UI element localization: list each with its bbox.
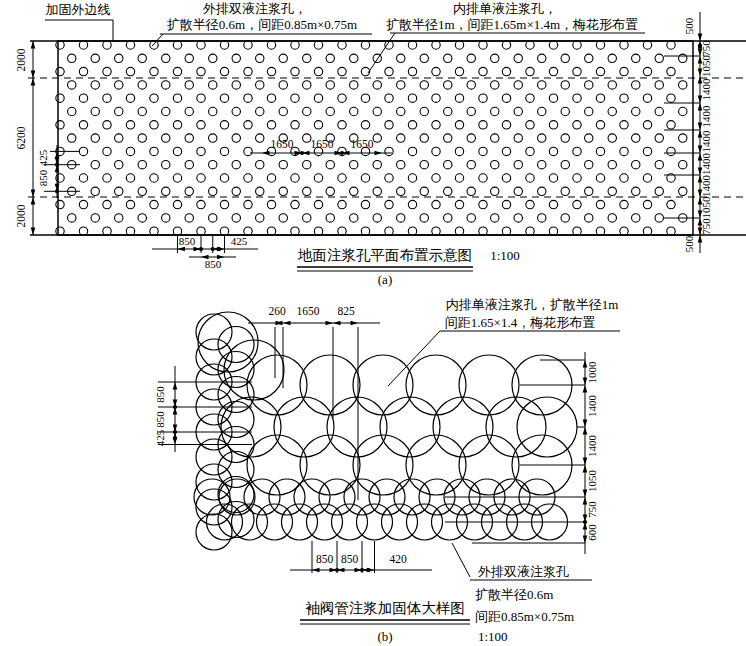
dim-label-right-b: 750 bbox=[586, 501, 598, 518]
grout-hole-circle bbox=[643, 227, 651, 235]
grout-hole-circle bbox=[643, 174, 651, 182]
dim-label-right: 1400 bbox=[700, 130, 712, 153]
grout-hole-circle bbox=[502, 227, 510, 235]
grout-hole-circle bbox=[256, 214, 264, 222]
dim-dot bbox=[360, 568, 364, 572]
grout-hole-circle bbox=[279, 214, 287, 222]
grout-hole-circle bbox=[79, 147, 87, 155]
grout-hole-circle bbox=[350, 107, 358, 115]
grout-hole-circle bbox=[432, 227, 440, 235]
grout-hole-circle bbox=[408, 94, 416, 102]
grout-hole-circle bbox=[56, 121, 64, 129]
grout-hole-circle bbox=[56, 67, 64, 75]
grout-hole-circle bbox=[479, 174, 487, 182]
grout-hole-circle bbox=[232, 107, 240, 115]
grout-hole-circle bbox=[338, 94, 346, 102]
grout-hole-circle bbox=[397, 107, 405, 115]
leader-line bbox=[368, 33, 395, 73]
dim-label-left: 2000 bbox=[15, 204, 27, 227]
grout-hole-circle bbox=[209, 54, 217, 62]
dim-arrow bbox=[217, 247, 225, 252]
dim-label-bottom-b: 850 bbox=[341, 553, 359, 565]
grout-hole-circle bbox=[173, 41, 181, 49]
dim-label-top-b: 825 bbox=[337, 305, 355, 317]
grout-hole-circle bbox=[197, 147, 205, 155]
dim-arrow bbox=[583, 427, 588, 435]
dim-arrow bbox=[31, 41, 36, 49]
grout-hole-circle bbox=[373, 187, 381, 195]
figure-b-title: 袖阀管注浆加固体大样图 bbox=[305, 600, 465, 616]
grout-hole-circle bbox=[291, 174, 299, 182]
grout-hole-circle bbox=[585, 54, 593, 62]
grout-hole-circle bbox=[338, 174, 346, 182]
grout-hole-circle bbox=[244, 147, 252, 155]
grout-hole-circle bbox=[479, 67, 487, 75]
grout-hole-circle bbox=[408, 200, 416, 208]
grout-hole-circle bbox=[408, 227, 416, 235]
outer-holes-label-b: 外排双液注浆孔 bbox=[477, 564, 569, 579]
grout-hole-circle bbox=[185, 187, 193, 195]
figure-a-scale: 1:100 bbox=[490, 248, 520, 263]
grout-hole-circle bbox=[467, 81, 475, 89]
grout-hole-circle bbox=[561, 161, 569, 169]
grout-hole-circle bbox=[643, 147, 651, 155]
grout-hole-circle bbox=[103, 67, 111, 75]
grout-hole-circle bbox=[244, 174, 252, 182]
grout-hole-circle bbox=[420, 161, 428, 169]
grout-hole-circle bbox=[185, 134, 193, 142]
grout-hole-circle bbox=[279, 161, 287, 169]
grout-hole-circle bbox=[491, 134, 499, 142]
grout-hole-circle bbox=[655, 54, 663, 62]
dim-label-right: 1400 bbox=[700, 153, 712, 176]
grout-hole-circle bbox=[514, 214, 522, 222]
inner-grout-circle bbox=[380, 397, 440, 457]
inner-grout-circle bbox=[406, 435, 466, 495]
grout-hole-circle bbox=[455, 67, 463, 75]
grout-hole-circle bbox=[103, 147, 111, 155]
grout-hole-circle bbox=[291, 227, 299, 235]
grout-hole-circle bbox=[220, 147, 228, 155]
grout-hole-circle bbox=[632, 187, 640, 195]
grout-hole-circle bbox=[56, 227, 64, 235]
grout-hole-circle bbox=[585, 134, 593, 142]
grout-hole-circle bbox=[643, 121, 651, 129]
dim-arrow bbox=[375, 151, 383, 156]
grout-hole-circle bbox=[326, 161, 334, 169]
grout-hole-circle bbox=[91, 107, 99, 115]
grout-hole-circle bbox=[408, 147, 416, 155]
outer-holes-label-b: 扩散半径0.6m bbox=[475, 587, 553, 602]
inner-grout-circle bbox=[517, 397, 577, 457]
dim-arrow bbox=[698, 235, 703, 243]
grout-hole-circle bbox=[491, 187, 499, 195]
grout-hole-circle bbox=[115, 134, 123, 142]
grout-hole-circle bbox=[408, 67, 416, 75]
dim-arrow bbox=[262, 151, 270, 156]
grout-hole-circle bbox=[115, 54, 123, 62]
grout-hole-circle bbox=[526, 67, 534, 75]
grout-hole-circle bbox=[444, 107, 452, 115]
grout-hole-circle bbox=[385, 147, 393, 155]
grout-hole-circle bbox=[256, 134, 264, 142]
grout-hole-circle bbox=[220, 174, 228, 182]
grout-hole-circle bbox=[232, 81, 240, 89]
dim-arrow bbox=[31, 197, 36, 205]
grout-hole-circle bbox=[502, 41, 510, 49]
dim-label-right: 750 bbox=[700, 40, 712, 57]
grout-hole-circle bbox=[209, 81, 217, 89]
grout-hole-circle bbox=[314, 121, 322, 129]
dim-arrow bbox=[583, 458, 588, 466]
grout-hole-circle bbox=[185, 161, 193, 169]
grout-hole-circle bbox=[314, 174, 322, 182]
grout-hole-circle bbox=[538, 107, 546, 115]
grout-hole-circle bbox=[256, 54, 264, 62]
grout-hole-circle bbox=[667, 147, 675, 155]
inner-grout-circle bbox=[459, 355, 519, 415]
grout-hole-circle bbox=[491, 107, 499, 115]
grout-hole-circle bbox=[608, 54, 616, 62]
grout-hole-circle bbox=[267, 67, 275, 75]
grout-hole-circle bbox=[467, 161, 475, 169]
grout-hole-circle bbox=[479, 94, 487, 102]
grout-hole-circle bbox=[526, 94, 534, 102]
grout-hole-circle bbox=[538, 81, 546, 89]
grout-hole-circle bbox=[103, 200, 111, 208]
grout-hole-circle bbox=[162, 54, 170, 62]
dim-label-right: 500 bbox=[683, 17, 695, 34]
grout-hole-circle bbox=[126, 94, 134, 102]
dim-dot bbox=[340, 151, 344, 155]
grout-hole-circle bbox=[244, 200, 252, 208]
dim-arrow bbox=[312, 568, 320, 573]
grout-hole-circle bbox=[432, 67, 440, 75]
inner-grout-circle bbox=[459, 435, 519, 495]
grout-hole-circle bbox=[608, 134, 616, 142]
grout-hole-circle bbox=[455, 200, 463, 208]
leader-line bbox=[452, 543, 470, 577]
grout-hole-circle bbox=[573, 121, 581, 129]
outer-grout-circle bbox=[218, 502, 254, 538]
dim-label-right-b: 1050 bbox=[586, 470, 598, 493]
grout-hole-circle bbox=[150, 147, 158, 155]
grout-hole-circle bbox=[267, 174, 275, 182]
outer-grout-circle bbox=[196, 514, 232, 550]
grout-hole-circle bbox=[397, 161, 405, 169]
outer-holes-label-b: 间距0.85m×0.75m bbox=[475, 609, 574, 624]
grout-hole-circle bbox=[197, 227, 205, 235]
grout-hole-circle bbox=[126, 121, 134, 129]
dim-dot bbox=[211, 247, 215, 251]
grout-hole-circle bbox=[232, 187, 240, 195]
dim-arrow bbox=[173, 382, 178, 390]
grout-hole-circle bbox=[197, 174, 205, 182]
grout-hole-circle bbox=[655, 107, 663, 115]
grout-hole-circle bbox=[420, 81, 428, 89]
dim-dot bbox=[55, 189, 59, 193]
dim-dot bbox=[173, 405, 177, 409]
grout-hole-circle bbox=[126, 200, 134, 208]
grout-hole-circle bbox=[338, 41, 346, 49]
inner-holes-label: 内排单液注浆孔， bbox=[453, 1, 557, 16]
grout-hole-circle bbox=[197, 67, 205, 75]
grout-hole-circle bbox=[68, 54, 76, 62]
grout-hole-circle bbox=[373, 134, 381, 142]
grout-hole-circle bbox=[279, 81, 287, 89]
grout-hole-circle bbox=[455, 174, 463, 182]
dim-label-middle: 1650 bbox=[351, 138, 374, 150]
grout-hole-circle bbox=[256, 81, 264, 89]
dim-dot bbox=[55, 163, 59, 167]
grout-hole-circle bbox=[455, 41, 463, 49]
dim-arrow bbox=[31, 228, 36, 236]
grout-hole-circle bbox=[620, 147, 628, 155]
grout-hole-circle bbox=[620, 41, 628, 49]
grout-hole-circle bbox=[620, 174, 628, 182]
grout-hole-circle bbox=[573, 41, 581, 49]
grout-hole-circle bbox=[514, 187, 522, 195]
grout-hole-circle bbox=[244, 121, 252, 129]
inner-grout-circle bbox=[486, 397, 546, 457]
grout-hole-circle bbox=[573, 147, 581, 155]
grout-hole-circle bbox=[385, 94, 393, 102]
grout-hole-circle bbox=[573, 227, 581, 235]
grout-hole-circle bbox=[256, 187, 264, 195]
grout-hole-circle bbox=[291, 41, 299, 49]
grout-hole-circle bbox=[326, 107, 334, 115]
grout-hole-circle bbox=[68, 134, 76, 142]
inner-grout-circle bbox=[300, 355, 360, 415]
grout-hole-circle bbox=[91, 214, 99, 222]
grout-hole-circle bbox=[538, 54, 546, 62]
grout-hole-circle bbox=[502, 200, 510, 208]
grout-hole-circle bbox=[162, 134, 170, 142]
grout-hole-circle bbox=[432, 174, 440, 182]
grout-hole-circle bbox=[420, 214, 428, 222]
grout-hole-circle bbox=[173, 174, 181, 182]
inner-holes-label-b: 间距1.65×1.4，梅花形布置 bbox=[445, 315, 595, 330]
grout-hole-circle bbox=[444, 161, 452, 169]
leader-line bbox=[152, 34, 163, 46]
grout-hole-circle bbox=[420, 107, 428, 115]
dim-arrow bbox=[351, 321, 359, 326]
grout-hole-circle bbox=[632, 214, 640, 222]
grout-hole-circle bbox=[267, 41, 275, 49]
dim-label-top-b: 260 bbox=[268, 305, 286, 317]
grout-hole-circle bbox=[432, 41, 440, 49]
grout-hole-circle bbox=[279, 187, 287, 195]
grout-hole-circle bbox=[138, 214, 146, 222]
grout-hole-circle bbox=[197, 121, 205, 129]
grout-hole-circle bbox=[655, 214, 663, 222]
grout-hole-circle bbox=[655, 187, 663, 195]
grout-hole-circle bbox=[68, 81, 76, 89]
grout-hole-circle bbox=[303, 214, 311, 222]
grout-hole-circle bbox=[596, 41, 604, 49]
grout-hole-circle bbox=[350, 187, 358, 195]
grout-hole-circle bbox=[220, 227, 228, 235]
grout-hole-circle bbox=[267, 94, 275, 102]
grout-hole-circle bbox=[150, 227, 158, 235]
dim-arrow bbox=[367, 568, 375, 573]
grout-hole-circle bbox=[549, 41, 557, 49]
grout-hole-circle bbox=[620, 227, 628, 235]
grout-hole-circle bbox=[314, 67, 322, 75]
grout-hole-circle bbox=[232, 54, 240, 62]
grout-hole-circle bbox=[115, 214, 123, 222]
grout-hole-circle bbox=[514, 54, 522, 62]
grout-hole-circle bbox=[126, 67, 134, 75]
figure-a-title: 地面注浆孔平面布置示意图 bbox=[297, 247, 472, 263]
dim-label-left-b: 850 bbox=[154, 386, 166, 403]
dim-label-right: 1400 bbox=[700, 78, 712, 101]
grout-hole-circle bbox=[526, 200, 534, 208]
grout-hole-circle bbox=[138, 134, 146, 142]
grout-hole-circle bbox=[150, 41, 158, 49]
grout-hole-circle bbox=[350, 54, 358, 62]
grout-hole-circle bbox=[162, 161, 170, 169]
grout-hole-circle bbox=[679, 161, 687, 169]
inner-grout-circle bbox=[406, 355, 466, 415]
grout-hole-circle bbox=[408, 174, 416, 182]
dim-label-left-b: 425 bbox=[154, 429, 166, 446]
grout-hole-circle bbox=[632, 161, 640, 169]
grout-hole-circle bbox=[502, 147, 510, 155]
grout-hole-circle bbox=[79, 94, 87, 102]
dim-label-middle: 1650 bbox=[271, 138, 294, 150]
grout-hole-circle bbox=[338, 200, 346, 208]
grout-hole-circle bbox=[526, 174, 534, 182]
grout-hole-circle bbox=[267, 200, 275, 208]
grout-hole-circle bbox=[150, 67, 158, 75]
grout-hole-circle bbox=[596, 67, 604, 75]
dim-dot bbox=[173, 430, 177, 434]
grout-hole-circle bbox=[220, 41, 228, 49]
dim-label-left: 6200 bbox=[15, 126, 27, 149]
inner-holes-label-b: 内排单液注浆孔，扩散半径1m bbox=[446, 297, 619, 312]
grout-hole-circle bbox=[655, 81, 663, 89]
grout-hole-circle bbox=[679, 187, 687, 195]
document-page: 2000620020004258501650165016505007501050… bbox=[0, 0, 746, 646]
grout-hole-circle bbox=[632, 107, 640, 115]
grout-hole-circle bbox=[209, 107, 217, 115]
grout-hole-circle bbox=[326, 54, 334, 62]
dim-label-right: 1400 bbox=[700, 105, 712, 128]
grout-hole-circle bbox=[150, 94, 158, 102]
dim-label-right: 500 bbox=[683, 235, 695, 252]
grout-hole-circle bbox=[209, 214, 217, 222]
grout-hole-circle bbox=[244, 67, 252, 75]
grout-hole-circle bbox=[385, 121, 393, 129]
grout-hole-circle bbox=[491, 214, 499, 222]
grout-hole-circle bbox=[115, 187, 123, 195]
grout-hole-circle bbox=[91, 161, 99, 169]
grout-hole-circle bbox=[596, 174, 604, 182]
grout-hole-circle bbox=[361, 227, 369, 235]
grout-hole-circle bbox=[138, 107, 146, 115]
grout-hole-circle bbox=[514, 134, 522, 142]
grout-hole-circle bbox=[279, 107, 287, 115]
grout-hole-circle bbox=[162, 214, 170, 222]
grout-hole-circle bbox=[585, 161, 593, 169]
grout-hole-circle bbox=[291, 94, 299, 102]
grout-hole-circle bbox=[502, 121, 510, 129]
grout-hole-circle bbox=[209, 134, 217, 142]
grout-hole-circle bbox=[596, 121, 604, 129]
grout-hole-circle bbox=[79, 200, 87, 208]
grout-hole-circle bbox=[126, 174, 134, 182]
grout-hole-circle bbox=[561, 214, 569, 222]
grout-hole-circle bbox=[91, 81, 99, 89]
grout-hole-circle bbox=[173, 200, 181, 208]
inner-holes-label: 扩散半径1m，间距1.65m×1.4m，梅花形布置 bbox=[386, 17, 638, 32]
grout-hole-circle bbox=[220, 200, 228, 208]
grout-hole-circle bbox=[68, 107, 76, 115]
grout-hole-circle bbox=[138, 81, 146, 89]
grout-hole-circle bbox=[244, 41, 252, 49]
grout-hole-circle bbox=[185, 54, 193, 62]
grout-hole-circle bbox=[338, 121, 346, 129]
dim-arrow bbox=[283, 321, 291, 326]
grout-hole-circle bbox=[479, 227, 487, 235]
grouting-layout-drawing: 2000620020004258501650165016505007501050… bbox=[0, 0, 746, 646]
grout-hole-circle bbox=[115, 107, 123, 115]
grout-hole-circle bbox=[173, 121, 181, 129]
inner-grout-circle bbox=[274, 397, 334, 457]
grout-hole-circle bbox=[573, 94, 581, 102]
grout-hole-circle bbox=[514, 161, 522, 169]
grout-hole-circle bbox=[361, 121, 369, 129]
grout-hole-circle bbox=[373, 107, 381, 115]
grout-hole-circle bbox=[549, 174, 557, 182]
grout-hole-circle bbox=[138, 54, 146, 62]
grout-hole-circle bbox=[444, 214, 452, 222]
grout-hole-circle bbox=[479, 147, 487, 155]
grout-hole-circle bbox=[549, 94, 557, 102]
grout-hole-circle bbox=[444, 187, 452, 195]
figure-a-tag: (a) bbox=[378, 272, 392, 287]
grout-hole-circle bbox=[314, 94, 322, 102]
dim-label-right-b: 600 bbox=[586, 524, 598, 541]
figure-b-tag: (b) bbox=[377, 629, 392, 644]
grout-hole-circle bbox=[514, 107, 522, 115]
grout-hole-circle bbox=[397, 214, 405, 222]
dim-arrow bbox=[698, 34, 703, 42]
grout-hole-circle bbox=[643, 67, 651, 75]
grout-hole-circle bbox=[561, 187, 569, 195]
grout-hole-circle bbox=[455, 147, 463, 155]
grout-hole-circle bbox=[232, 161, 240, 169]
dim-label-bottom: 850 bbox=[179, 235, 196, 247]
grout-hole-circle bbox=[620, 200, 628, 208]
dim-dot bbox=[335, 568, 339, 572]
grout-hole-circle bbox=[162, 187, 170, 195]
grout-hole-circle bbox=[573, 174, 581, 182]
grout-hole-circle bbox=[596, 227, 604, 235]
dim-dot bbox=[199, 247, 203, 251]
grout-hole-circle bbox=[150, 174, 158, 182]
grout-hole-circle bbox=[667, 121, 675, 129]
grout-hole-circle bbox=[115, 161, 123, 169]
grout-hole-circle bbox=[115, 81, 123, 89]
grout-hole-circle bbox=[303, 54, 311, 62]
grout-hole-circle bbox=[514, 81, 522, 89]
grout-hole-circle bbox=[573, 67, 581, 75]
dim-label-middle: 1650 bbox=[311, 138, 334, 150]
grout-hole-circle bbox=[408, 121, 416, 129]
grout-hole-circle bbox=[561, 81, 569, 89]
